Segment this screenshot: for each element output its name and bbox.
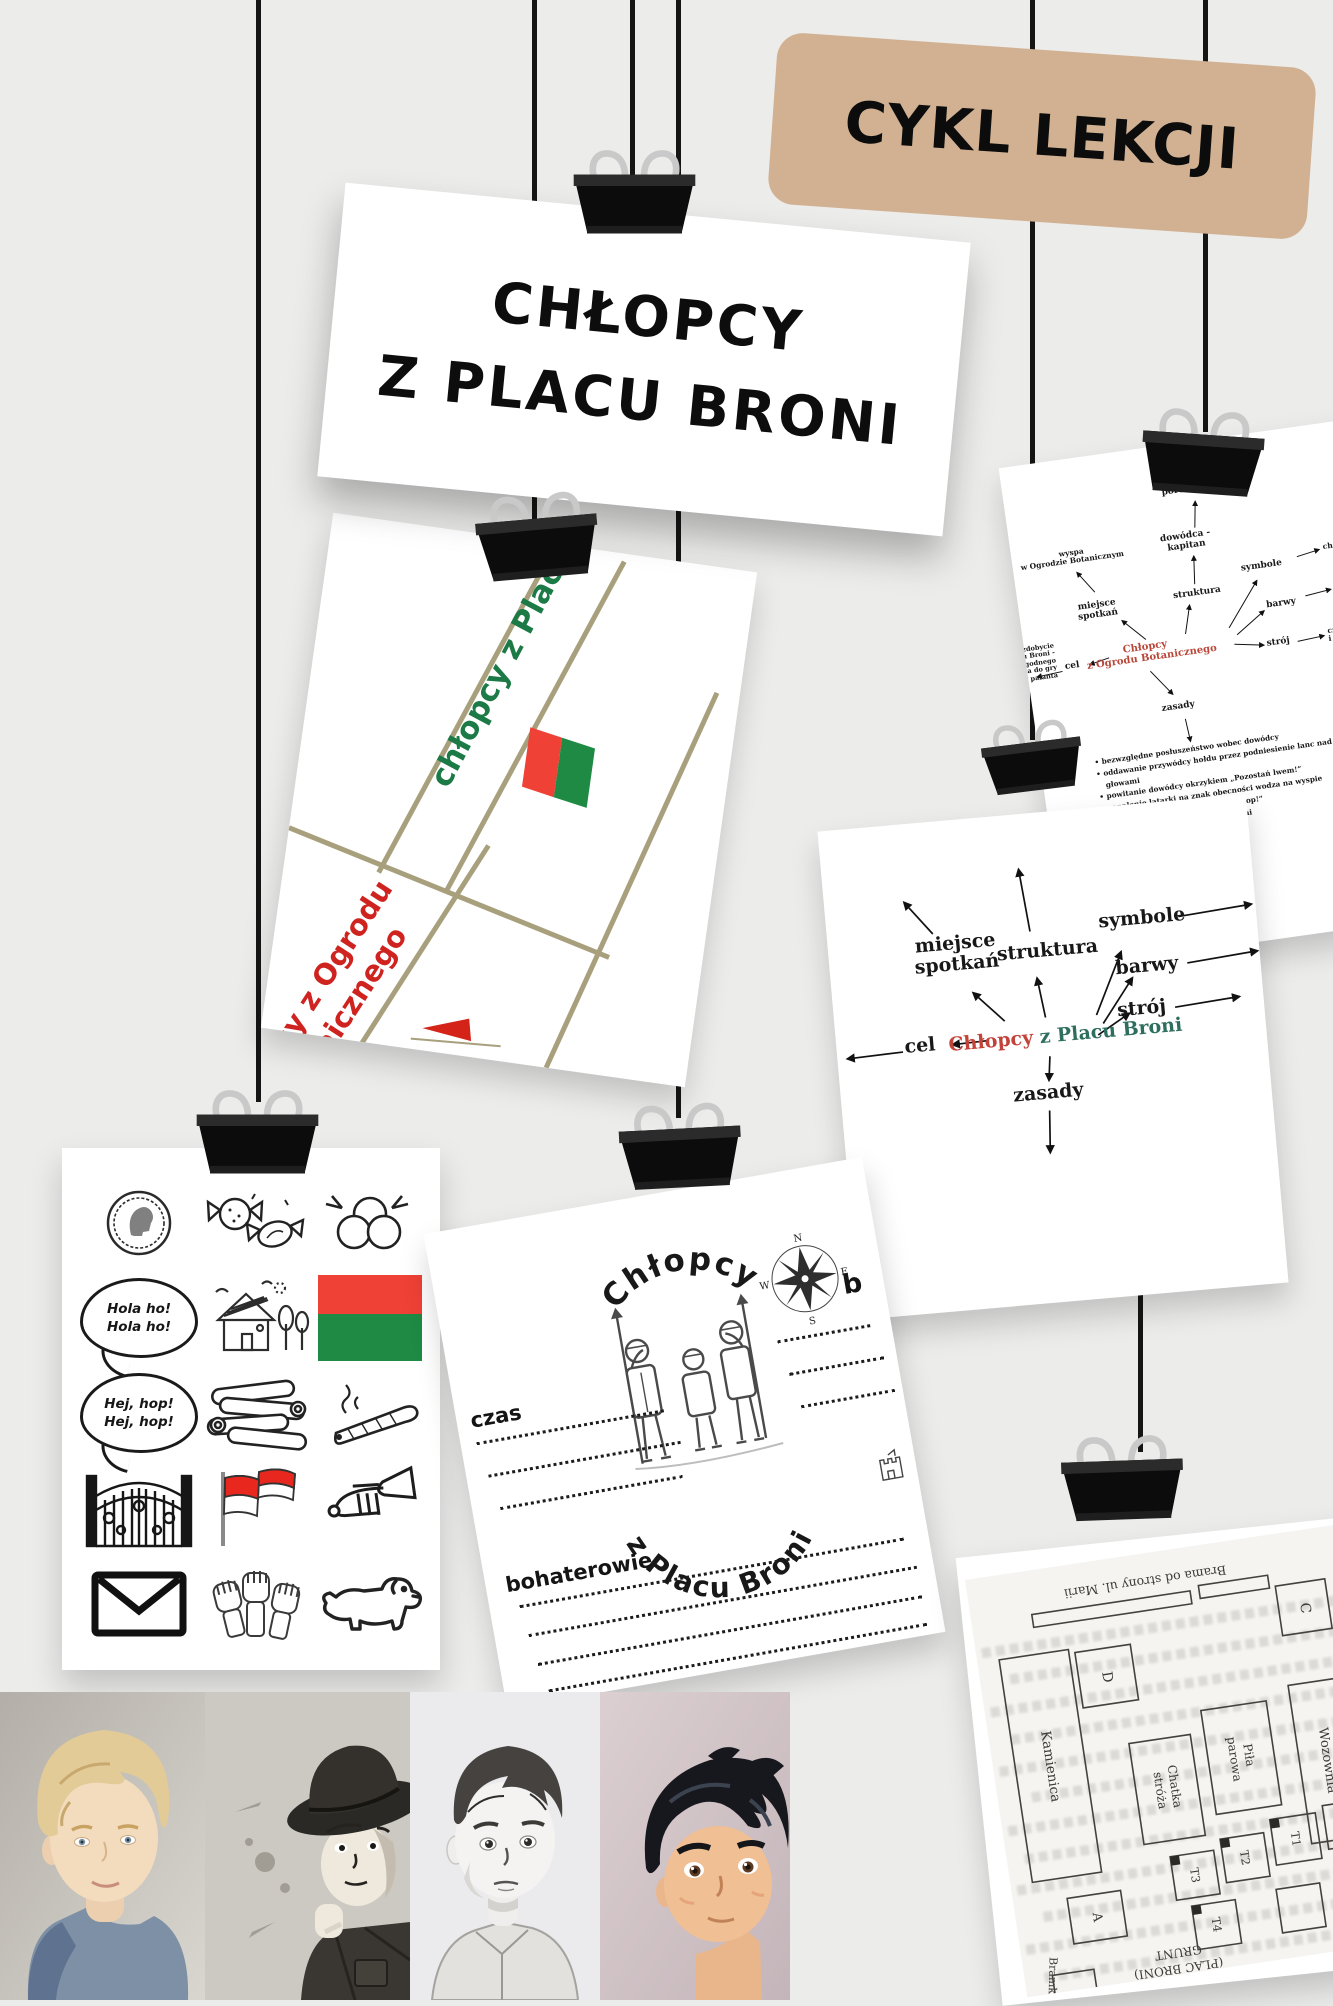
coin-icon bbox=[101, 1187, 177, 1259]
plan-label-d: D bbox=[1098, 1670, 1115, 1683]
icons-vocabulary-card: Hola ho! Hola ho! Hej, hop! Hej, hop! bbox=[62, 1148, 440, 1670]
plan-label-t1: T1 bbox=[1288, 1831, 1304, 1848]
plan-label-a: A bbox=[1088, 1911, 1104, 1924]
flag-green-stripe bbox=[318, 1314, 422, 1361]
three-boys-illustration bbox=[608, 1285, 784, 1473]
cycle-badge: CYKL LEKCJI bbox=[767, 31, 1318, 240]
node-cel: cel bbox=[904, 1034, 937, 1058]
hanging-string bbox=[1138, 1282, 1143, 1452]
candies-icon bbox=[205, 1188, 309, 1258]
plan-scan-card: Brama od strony ul. Marii C D Kamienica … bbox=[956, 1514, 1333, 2005]
map-red-triangle bbox=[422, 1012, 475, 1041]
blond-boy-portrait bbox=[0, 1692, 205, 2000]
house-icon bbox=[202, 1276, 312, 1360]
node-stroj: strój bbox=[1116, 996, 1167, 1021]
plan-label-t2: T2 bbox=[1237, 1849, 1253, 1866]
plan-label-c: C bbox=[1296, 1602, 1313, 1615]
compass-n: N bbox=[793, 1233, 804, 1245]
flag-red-stripe bbox=[318, 1275, 422, 1314]
bubble2-line1: Hej, hop! bbox=[104, 1395, 174, 1413]
binder-clip bbox=[1117, 402, 1288, 508]
binder-clip bbox=[961, 713, 1105, 807]
plan-label-kamienica: Kamienica bbox=[1037, 1730, 1063, 1803]
binder-clip bbox=[451, 485, 624, 594]
poster-page: { "page": {"bg": "#ececeb"}, "badge": {"… bbox=[0, 0, 1333, 2000]
compass-w: W bbox=[759, 1280, 772, 1293]
bubble2-line2: Hej, hop! bbox=[104, 1413, 174, 1431]
fists-icon bbox=[205, 1561, 309, 1645]
plan-label-pila: Piła parowa bbox=[1224, 1734, 1259, 1783]
plan-label-t4: T4 bbox=[1209, 1916, 1225, 1933]
logs-icon bbox=[198, 1371, 316, 1455]
worksheet-art: Chłopcy z Placu Broni bbox=[424, 1157, 946, 1709]
binder-clip bbox=[596, 1098, 766, 1202]
scanned-page: Brama od strony ul. Marii C D Kamienica … bbox=[965, 1522, 1333, 1997]
marbles-icon bbox=[318, 1188, 422, 1258]
dog-icon bbox=[316, 1565, 424, 1641]
portraits-strip bbox=[0, 1692, 790, 2000]
plac-broni-plan: Brama od strony ul. Marii C D Kamienica … bbox=[971, 1528, 1333, 1996]
map-card: chłopcy z Placu Broni chłopcy z Ogrodu B… bbox=[261, 513, 757, 1088]
cycle-badge-label: CYKL LEKCJI bbox=[842, 89, 1241, 182]
compass-s: S bbox=[808, 1316, 817, 1328]
mindmap-large-arrows bbox=[817, 794, 1288, 1320]
pila-l2: parowa bbox=[1224, 1736, 1245, 1783]
plan-label-chatka: Chatka stróża bbox=[1150, 1764, 1186, 1815]
worksheet-card: Chłopcy z Placu Broni bbox=[424, 1157, 946, 1709]
speech-bubble-hej: Hej, hop! Hej, hop! bbox=[80, 1373, 198, 1453]
letter-b: b bbox=[840, 1267, 864, 1301]
binder-clip bbox=[175, 1088, 340, 1183]
binder-clip bbox=[1038, 1431, 1206, 1532]
red-white-flags-icon bbox=[207, 1466, 307, 1550]
envelope-icon bbox=[89, 1567, 189, 1639]
icon-grid: Hola ho! Hola ho! Hej, hop! Hej, hop! bbox=[80, 1176, 422, 1650]
sketch-boy-portrait bbox=[410, 1692, 600, 2000]
mindmap-plac-broni-card: Chłopcy z Placu Broni miejsce spotkań st… bbox=[817, 794, 1288, 1320]
speech-bubble-hola: Hola ho! Hola ho! bbox=[80, 1278, 198, 1358]
territory-map: chłopcy z Placu Broni chłopcy z Ogrodu B… bbox=[261, 513, 757, 1088]
hanging-string bbox=[256, 0, 261, 1102]
gate-icon bbox=[83, 1466, 195, 1550]
binder-clip bbox=[552, 148, 717, 243]
castle-icon bbox=[878, 1449, 903, 1480]
node-cel: cel bbox=[1064, 660, 1080, 672]
compass-rose-icon: N E S W bbox=[752, 1226, 857, 1335]
red-green-flag-icon bbox=[318, 1275, 422, 1361]
cigar-icon bbox=[318, 1377, 422, 1449]
scout-hat-boy-portrait bbox=[205, 1692, 410, 2000]
plan-label-t3: T3 bbox=[1187, 1867, 1203, 1884]
node-miejsce-spotkan: miejsce spotkań bbox=[912, 929, 1000, 979]
bubble1-line2: Hola ho! bbox=[107, 1318, 171, 1336]
bubble1-line1: Hola ho! bbox=[107, 1300, 171, 1318]
plan-label-wozownia: Wozownia bbox=[1315, 1727, 1333, 1795]
trumpet-icon bbox=[313, 1463, 427, 1553]
anime-boy-portrait bbox=[600, 1692, 790, 2000]
plan-label-brama: Brama od strony ul. Marii bbox=[1063, 1562, 1227, 1601]
